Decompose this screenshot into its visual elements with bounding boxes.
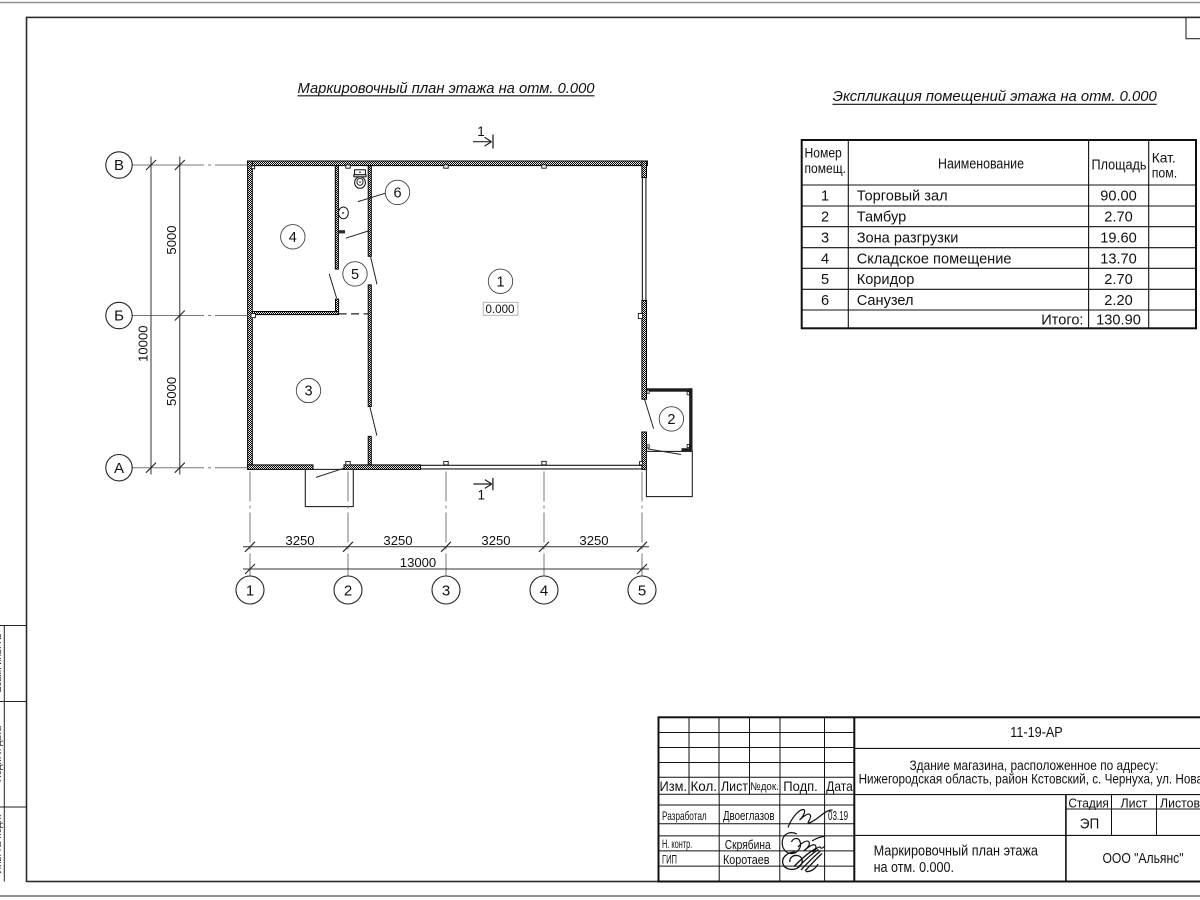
svg-text:ГИП: ГИП xyxy=(662,853,677,867)
svg-text:5: 5 xyxy=(821,272,829,288)
svg-text:Стадия: Стадия xyxy=(1068,795,1109,810)
svg-text:4: 4 xyxy=(821,251,829,267)
svg-text:Разработал: Разработал xyxy=(662,809,707,823)
svg-text:90.00: 90.00 xyxy=(1100,189,1137,205)
svg-text:Кат.: Кат. xyxy=(1152,151,1176,167)
svg-text:4: 4 xyxy=(540,582,548,599)
svg-text:1: 1 xyxy=(821,189,829,205)
svg-text:Торговый зал: Торговый зал xyxy=(857,189,948,205)
svg-text:Лист: Лист xyxy=(1121,795,1148,810)
svg-text:помещ.: помещ. xyxy=(805,161,847,177)
svg-text:130.90: 130.90 xyxy=(1096,313,1141,329)
svg-text:Изм.: Изм. xyxy=(660,779,688,794)
svg-text:Тамбур: Тамбур xyxy=(857,210,907,226)
svg-text:19.60: 19.60 xyxy=(1100,230,1137,246)
svg-text:2: 2 xyxy=(667,412,675,428)
svg-text:1: 1 xyxy=(478,488,486,503)
svg-text:В: В xyxy=(114,157,124,174)
svg-text:Номер: Номер xyxy=(805,146,842,162)
svg-text:ЭП: ЭП xyxy=(1080,815,1100,832)
svg-text:5000: 5000 xyxy=(164,377,179,406)
svg-text:5000: 5000 xyxy=(164,225,179,254)
svg-text:Подп.: Подп. xyxy=(783,779,818,794)
svg-text:6: 6 xyxy=(821,293,829,309)
svg-text:Экспликация помещений этажа на: Экспликация помещений этажа на отм. 0.00… xyxy=(833,89,1157,105)
svg-text:Коридор: Коридор xyxy=(857,272,915,288)
svg-text:Площадь: Площадь xyxy=(1092,158,1147,174)
svg-text:Подп. и дата: Подп. и дата xyxy=(0,725,4,782)
svg-text:ООО "Альянс": ООО "Альянс" xyxy=(1103,851,1184,867)
svg-text:пом.: пом. xyxy=(1152,166,1178,182)
svg-text:А: А xyxy=(114,460,124,477)
svg-text:Листов: Листов xyxy=(1160,795,1200,810)
svg-text:3250: 3250 xyxy=(579,533,608,548)
svg-text:Н. контр.: Н. контр. xyxy=(662,837,692,851)
svg-text:2: 2 xyxy=(344,582,352,599)
svg-text:Двоеглазов: Двоеглазов xyxy=(723,809,775,823)
svg-text:Кол.: Кол. xyxy=(691,779,718,794)
svg-text:Коротаев: Коротаев xyxy=(723,853,770,867)
svg-text:2.70: 2.70 xyxy=(1104,210,1132,226)
svg-text:2.70: 2.70 xyxy=(1104,272,1132,288)
svg-text:1: 1 xyxy=(477,124,485,139)
svg-text:3250: 3250 xyxy=(481,533,510,548)
svg-text:Инв. № подл.: Инв. № подл. xyxy=(0,814,4,873)
svg-text:1: 1 xyxy=(496,275,504,291)
svg-text:Маркировочный план этажа на от: Маркировочный план этажа на отм. 0.000 xyxy=(298,81,595,97)
svg-text:Дата: Дата xyxy=(826,779,853,794)
svg-text:13.70: 13.70 xyxy=(1100,251,1137,267)
svg-text:3: 3 xyxy=(442,582,450,599)
svg-text:2.20: 2.20 xyxy=(1104,293,1132,309)
svg-text:11-19-АР: 11-19-АР xyxy=(1010,725,1063,741)
svg-text:Санузел: Санузел xyxy=(857,293,914,309)
svg-text:6: 6 xyxy=(393,186,401,202)
svg-text:13000: 13000 xyxy=(400,555,436,570)
svg-text:Скрябина: Скрябина xyxy=(725,838,771,852)
svg-text:5: 5 xyxy=(351,267,359,283)
svg-text:1: 1 xyxy=(246,582,254,599)
svg-text:3: 3 xyxy=(821,230,829,246)
svg-text:10000: 10000 xyxy=(135,325,150,361)
svg-text:Нижегородская область, район К: Нижегородская область, район Кстовский, … xyxy=(859,771,1200,787)
svg-text:на отм. 0.000.: на отм. 0.000. xyxy=(874,860,954,876)
svg-text:Взам. инв. №: Взам. инв. № xyxy=(0,634,4,693)
svg-text:№док.: №док. xyxy=(750,781,779,793)
svg-text:0.000: 0.000 xyxy=(485,303,514,316)
svg-text:3250: 3250 xyxy=(383,533,412,548)
svg-text:Б: Б xyxy=(114,308,124,325)
svg-text:2: 2 xyxy=(821,210,829,226)
svg-text:Маркировочный план этажа: Маркировочный план этажа xyxy=(874,843,1038,859)
svg-text:Складское помещение: Складское помещение xyxy=(857,251,1012,267)
svg-text:3: 3 xyxy=(304,384,312,400)
svg-text:03.19: 03.19 xyxy=(828,809,848,823)
svg-text:Итого:: Итого: xyxy=(1041,313,1083,329)
svg-text:3250: 3250 xyxy=(285,533,314,548)
svg-text:Наименование: Наименование xyxy=(938,157,1024,173)
svg-text:Лист: Лист xyxy=(721,779,749,794)
svg-text:Зона разгрузки: Зона разгрузки xyxy=(857,230,959,246)
svg-text:4: 4 xyxy=(289,230,297,246)
svg-text:5: 5 xyxy=(638,582,646,599)
